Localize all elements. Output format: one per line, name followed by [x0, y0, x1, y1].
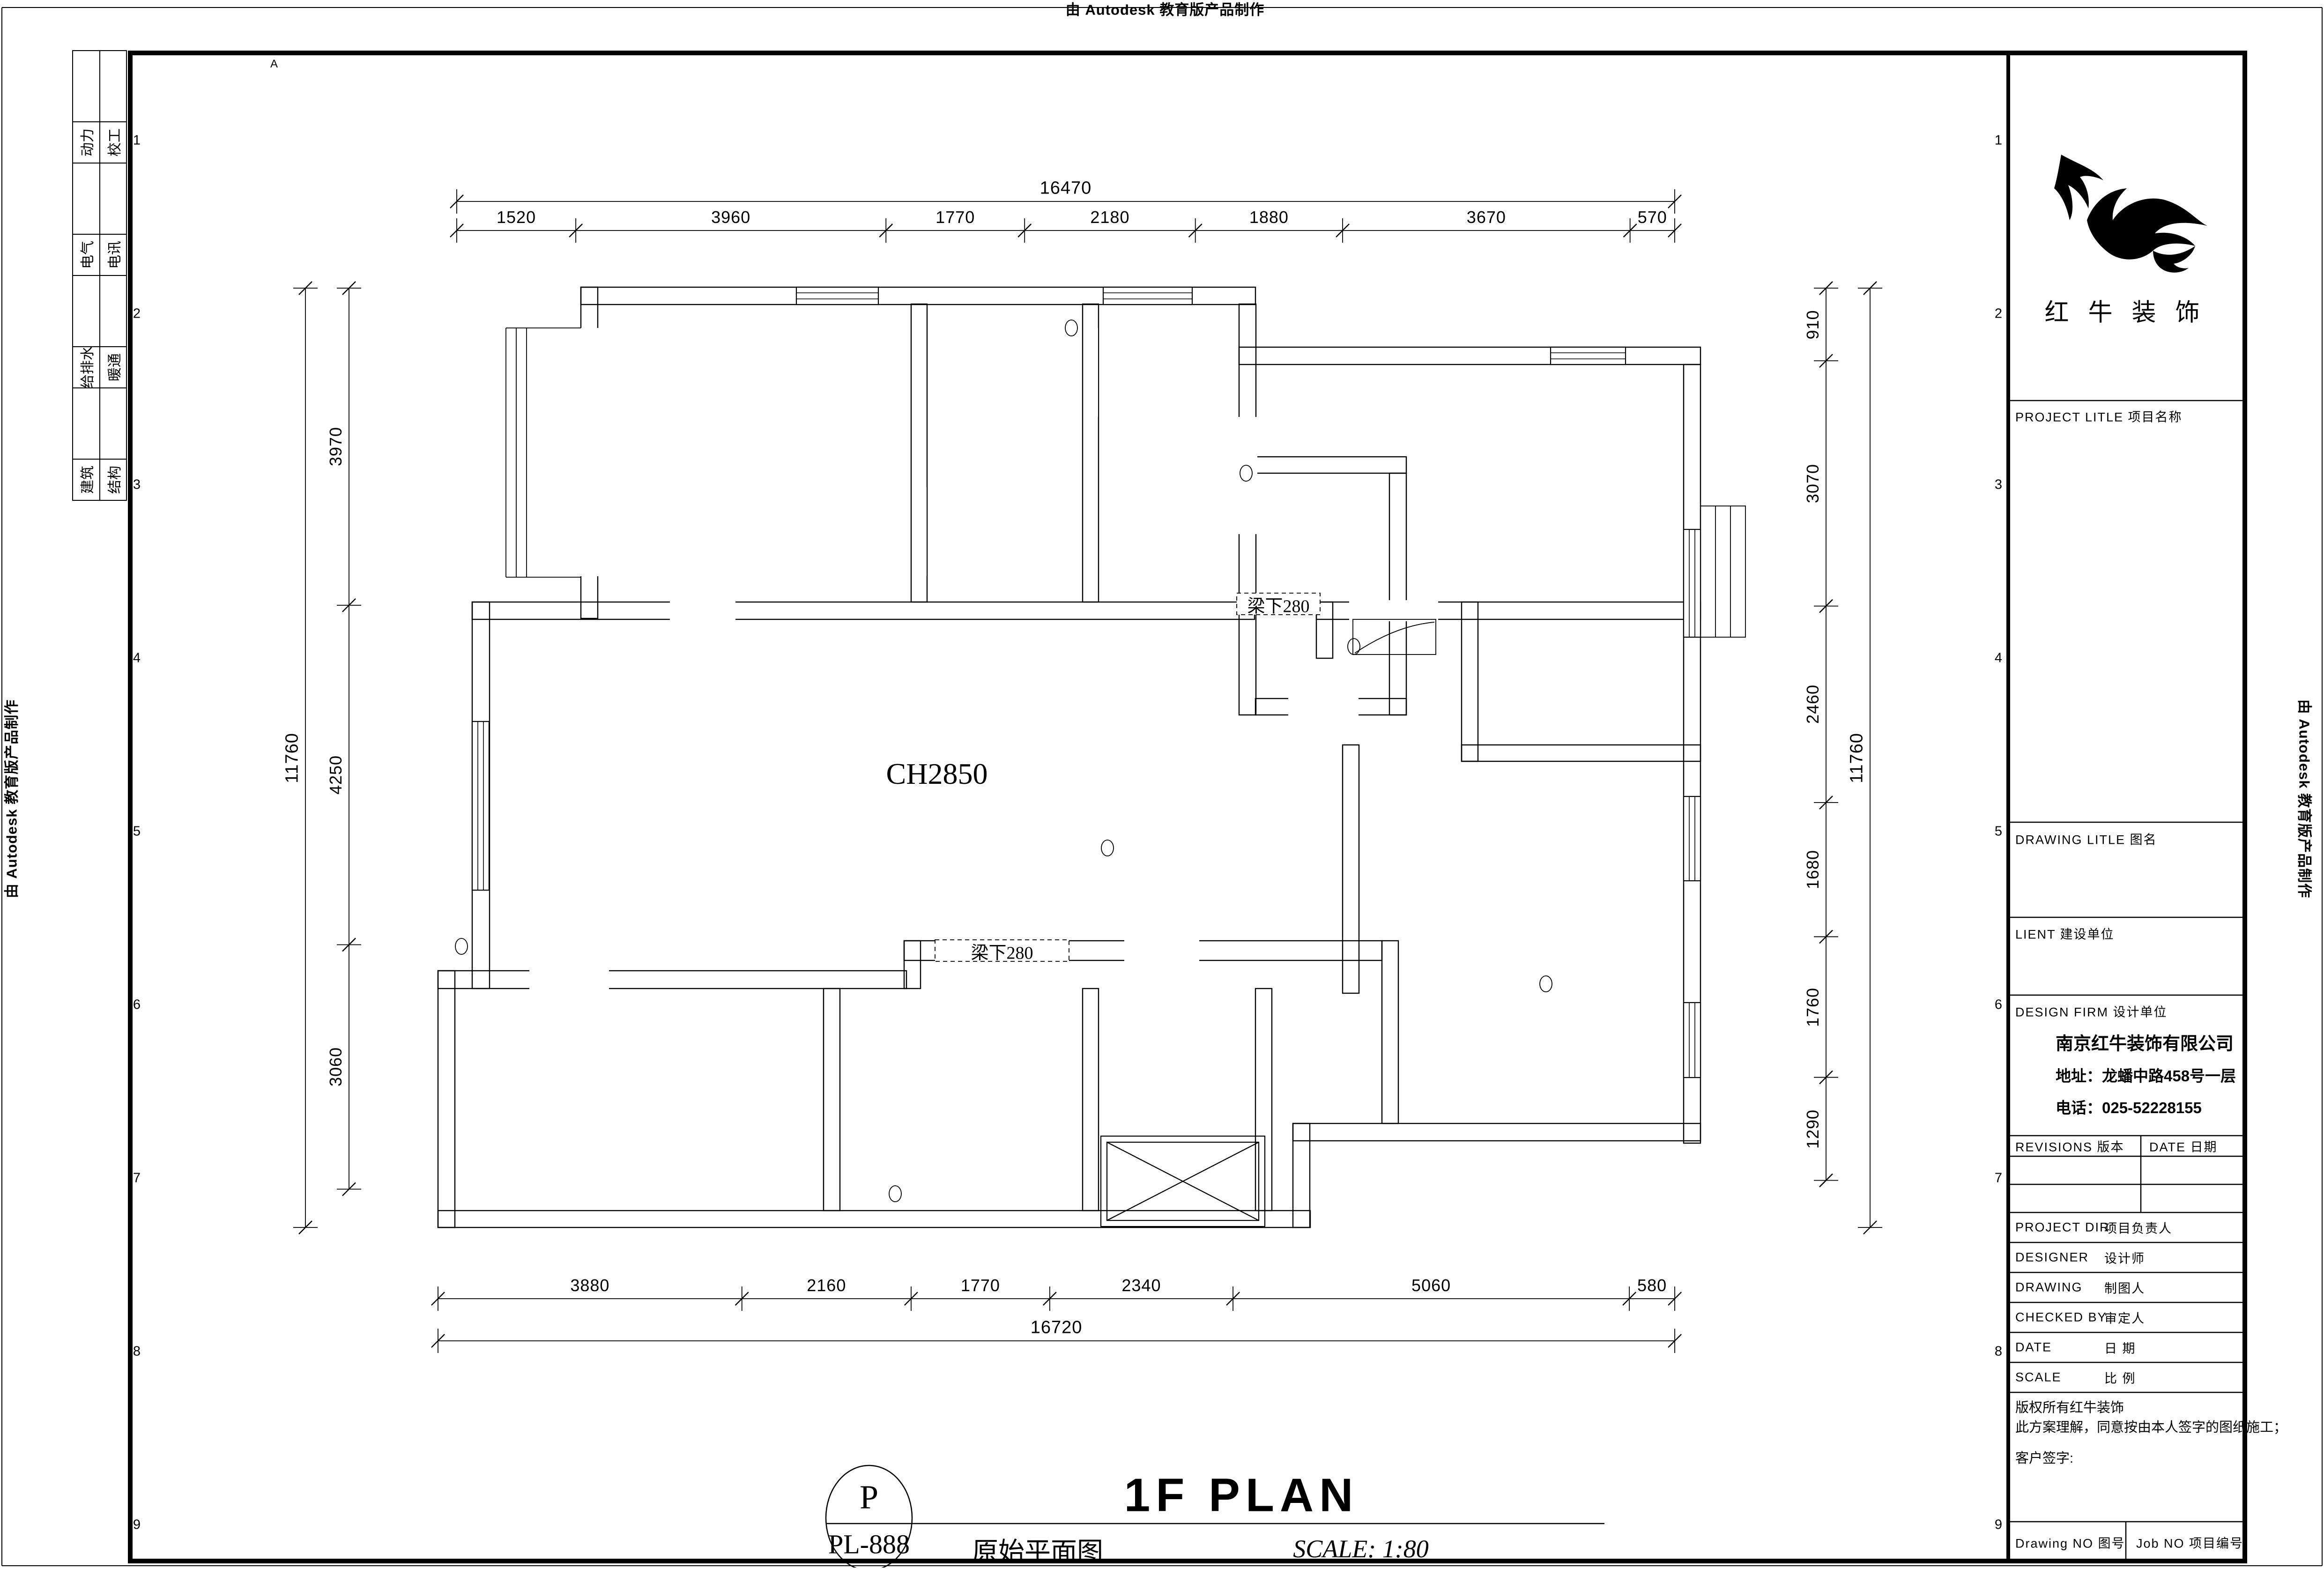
stamp-code: PL-888 — [828, 1529, 910, 1560]
discipline-table-grid — [73, 51, 126, 500]
dim-segment: 1520 — [497, 208, 536, 227]
title-block-row-en: CHECKED BY — [2015, 1310, 2107, 1325]
window — [1103, 287, 1192, 305]
dim-total: 11760 — [1847, 733, 1867, 783]
dim-segment: 1290 — [1803, 1109, 1823, 1148]
frame-grid-number-left: 3 — [133, 477, 141, 493]
watermark-right: 由 Autodesk 教育版产品制作 — [2295, 699, 2317, 898]
frame-grid-number-left: 5 — [133, 824, 141, 840]
title-block-row-en: DESIGNER — [2015, 1250, 2089, 1265]
door-opening — [1124, 939, 1199, 962]
dim-segment: 3070 — [1803, 464, 1823, 503]
dim-segment: 3670 — [1467, 208, 1506, 227]
dim-total: 11760 — [282, 733, 303, 783]
dim-segment: 2180 — [1090, 208, 1129, 227]
dim-total: 16470 — [1040, 178, 1092, 199]
wall — [1293, 1123, 1310, 1227]
dim-segment: 3060 — [326, 1047, 346, 1086]
frame-grid-number-left: 8 — [133, 1344, 141, 1360]
job-no-label: Job NO 项目编号 — [2136, 1533, 2243, 1552]
shaft-x-box — [1101, 1136, 1265, 1227]
title-block-row-en: PROJECT DIR — [2015, 1220, 2110, 1235]
wall — [1255, 989, 1272, 1211]
window — [796, 287, 878, 305]
frame-grid-number-right: 4 — [1995, 651, 2002, 666]
copyright-line-1: 版权所有红牛装饰 — [2015, 1397, 2124, 1416]
frame-grid-number-left: 4 — [133, 651, 141, 666]
wall — [472, 602, 1255, 619]
window — [1551, 347, 1626, 364]
frame-grid-number-left: 9 — [133, 1517, 141, 1533]
dim-segment: 570 — [1638, 208, 1667, 227]
cad-sheet: { "sheet": { "watermark_top": "由 Autodes… — [0, 0, 2324, 1568]
wall — [1462, 745, 1700, 761]
scale-text: SCALE: 1:80 — [1293, 1534, 1429, 1563]
frame-grid-number-left: 2 — [133, 306, 141, 322]
title-block-row-en: DRAWING — [2015, 1280, 2083, 1295]
dim-segment: 580 — [1637, 1276, 1667, 1295]
discipline-cell: 电气 — [76, 241, 97, 269]
fixture-circle — [455, 938, 468, 954]
fixture-circle — [1348, 639, 1360, 654]
door-opening — [670, 600, 735, 621]
firm-address: 地址：龙蟠中路458号一层 — [2056, 1063, 2236, 1086]
copyright-line-2: 此方案理解，同意按由本人签字的图纸施工； — [2015, 1416, 2287, 1436]
frame-grid-number-right: 9 — [1995, 1517, 2002, 1533]
frame-grid-number-right: 7 — [1995, 1171, 2002, 1186]
wall — [1239, 347, 1700, 364]
door-opening — [579, 328, 599, 576]
wall — [438, 971, 906, 989]
wall — [1382, 941, 1398, 1123]
frame-grid-number-left: 1 — [133, 133, 141, 149]
door-leaf — [1353, 619, 1436, 654]
wall — [438, 1211, 1310, 1227]
discipline-cell: 结构 — [103, 466, 124, 494]
title-block-row-zh: 比 例 — [2104, 1368, 2136, 1387]
title-block-row-zh: 项目负责人 — [2104, 1219, 2172, 1237]
floor-plan — [293, 189, 1882, 1353]
firm-name: 南京红牛装饰有限公司 — [2056, 1029, 2234, 1055]
dim-segment: 1770 — [936, 208, 975, 227]
fixture-circle — [889, 1186, 901, 1202]
wall — [1083, 989, 1099, 1211]
dim-segment: 1680 — [1803, 850, 1823, 889]
fixture-circle — [1101, 840, 1114, 856]
beam-label-1: 梁下280 — [1247, 592, 1309, 617]
title-block-row-zh: 制图人 — [2104, 1279, 2145, 1297]
dim-segment: 1880 — [1249, 208, 1289, 227]
dim-segment: 2340 — [1121, 1276, 1161, 1295]
drawing-frame — [130, 53, 2245, 1561]
wall — [1389, 473, 1406, 715]
watermark-top: 由 Autodesk 教育版产品制作 — [1066, 0, 1264, 19]
discipline-cell: 给排水 — [76, 346, 97, 388]
bay-window — [506, 328, 581, 577]
wall — [824, 989, 840, 1211]
date-header-label: DATE 日期 — [2149, 1137, 2218, 1155]
discipline-cell: 校工 — [103, 128, 124, 156]
bay-window-right — [1700, 506, 1745, 637]
dim-segment: 2160 — [807, 1276, 846, 1295]
dim-segment: 3960 — [711, 208, 750, 227]
frame-grid-number-left: 7 — [133, 1171, 141, 1186]
window — [1684, 1003, 1700, 1078]
dim-total: 16720 — [1031, 1318, 1083, 1338]
client-label: LIENT 建设单位 — [2015, 924, 2115, 943]
brand-logo — [2054, 155, 2207, 273]
dim-segment: 1760 — [1803, 987, 1823, 1026]
sheet-border — [2, 7, 2322, 1566]
dim-segment: 2460 — [1803, 684, 1823, 724]
plan-subtitle: 原始平面图 — [972, 1531, 1103, 1569]
room-height-label: CH2850 — [886, 757, 988, 791]
discipline-cell: 电讯 — [103, 241, 124, 269]
title-block-grid — [2010, 401, 2243, 1561]
frame-grid-number-right: 2 — [1995, 306, 2002, 322]
wall — [1462, 602, 1478, 761]
dim-segment: 3970 — [326, 427, 346, 466]
drawing-no-label: Drawing NO 图号 — [2015, 1533, 2125, 1552]
door-opening — [1349, 600, 1438, 621]
wall — [1343, 745, 1359, 993]
dim-segment: 910 — [1803, 310, 1823, 339]
plan-title: 1F PLAN — [1124, 1469, 1359, 1523]
title-block-row-zh: 审定人 — [2104, 1309, 2145, 1327]
title-block-row-zh: 日 期 — [2104, 1338, 2136, 1357]
frame-grid-number-right: 8 — [1995, 1344, 2002, 1360]
frame-grid-number-left: 6 — [133, 997, 141, 1013]
dim-segment: 4250 — [326, 755, 346, 795]
dim-segment: 5060 — [1411, 1276, 1451, 1295]
dim-segment: 3880 — [570, 1276, 609, 1295]
discipline-cell: 暖通 — [103, 353, 124, 381]
wall — [1293, 1123, 1700, 1141]
door-opening — [913, 487, 927, 576]
discipline-cell: 动力 — [76, 128, 97, 156]
drawing-title-label: DRAWING LITLE 图名 — [2015, 830, 2157, 848]
title-block-row-zh: 设计师 — [2104, 1249, 2145, 1267]
frame-grid-number-right: 5 — [1995, 824, 2002, 840]
wall — [438, 971, 455, 1227]
window — [1684, 529, 1700, 637]
wall — [1255, 457, 1406, 473]
firm-phone: 电话：025-52228155 — [2056, 1095, 2202, 1118]
brand-name: 红 牛 装 饰 — [2044, 293, 2206, 328]
title-block-row-en: SCALE — [2015, 1370, 2062, 1385]
stamp-letter: P — [860, 1478, 878, 1517]
beam-label-2: 梁下280 — [971, 938, 1033, 964]
window — [472, 721, 489, 890]
watermark-left: 由 Autodesk 教育版产品制作 — [0, 699, 21, 898]
window — [1684, 796, 1700, 881]
fixture-circle — [1065, 320, 1077, 336]
project-title-label: PROJECT LITLE 项目名称 — [2015, 407, 2183, 425]
door-opening — [1084, 328, 1098, 417]
client-sign-label: 客户签字: — [2015, 1447, 2073, 1467]
frame-grid-letter-A: A — [270, 58, 278, 71]
frame-grid-number-right: 6 — [1995, 997, 2002, 1013]
fixture-circle — [1540, 976, 1552, 992]
door-opening — [529, 969, 609, 990]
door-opening — [1288, 697, 1359, 716]
revisions-label: REVISIONS 版本 — [2015, 1137, 2124, 1155]
title-block-row-en: DATE — [2015, 1340, 2052, 1355]
frame-grid-number-right: 1 — [1995, 133, 2002, 149]
frame-grid-number-right: 3 — [1995, 477, 2002, 493]
dim-segment: 1770 — [961, 1276, 1000, 1295]
design-firm-label: DESIGN FIRM 设计单位 — [2015, 1002, 2168, 1020]
drawing-linework — [0, 0, 2324, 1568]
discipline-cell: 建筑 — [76, 466, 97, 494]
